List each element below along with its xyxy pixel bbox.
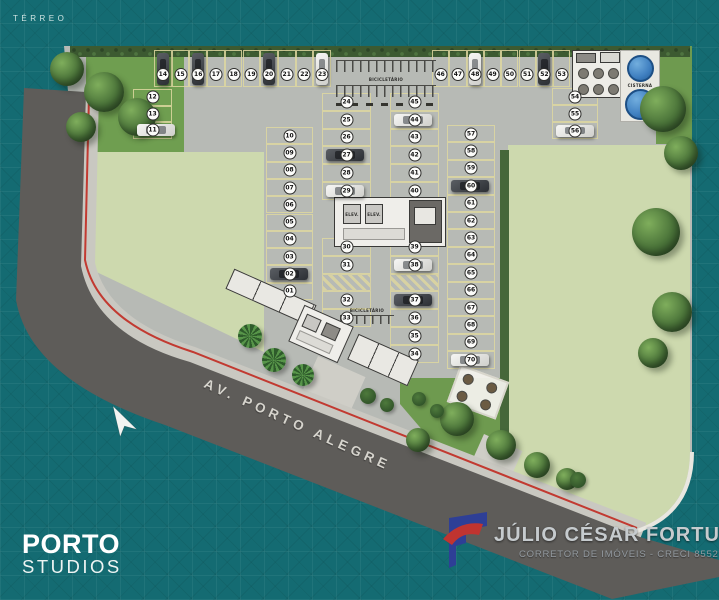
tree-icon bbox=[640, 86, 686, 132]
table-icon bbox=[578, 68, 589, 79]
spot-number: 12 bbox=[146, 91, 159, 104]
spot-number: 23 bbox=[316, 68, 329, 81]
table-icon bbox=[593, 84, 604, 95]
project-name: PORTO bbox=[22, 531, 122, 557]
spot-number: 28 bbox=[340, 167, 353, 180]
spot-number: 04 bbox=[283, 233, 296, 246]
spot-number: 45 bbox=[408, 95, 421, 108]
spot-number: 55 bbox=[569, 107, 582, 120]
spot-number: 29 bbox=[340, 184, 353, 197]
parking-spot: 19 bbox=[243, 50, 261, 87]
tree-icon bbox=[486, 430, 516, 460]
bbq-room bbox=[600, 52, 620, 63]
lobby-corridor bbox=[343, 228, 405, 240]
north-arrow-icon bbox=[104, 400, 138, 440]
spot-number: 16 bbox=[192, 68, 205, 81]
parking-spot: 60 bbox=[447, 177, 495, 194]
no-parking-hatch bbox=[322, 274, 371, 292]
table-icon bbox=[608, 84, 619, 95]
parking-spot: 63 bbox=[447, 229, 495, 246]
shrub-icon bbox=[380, 398, 394, 412]
parking-spot: 49 bbox=[484, 50, 501, 87]
spot-number: 38 bbox=[408, 258, 421, 271]
parking-spot: 07 bbox=[266, 179, 313, 196]
spot-number: 52 bbox=[538, 68, 551, 81]
spot-number: 67 bbox=[465, 301, 478, 314]
parking-spot: 15 bbox=[172, 50, 190, 87]
spot-number: 68 bbox=[465, 319, 478, 332]
parking-spot: 26 bbox=[322, 129, 371, 147]
parking-spot: 48 bbox=[467, 50, 484, 87]
spot-number: 56 bbox=[569, 124, 582, 137]
no-parking-hatch bbox=[390, 274, 439, 292]
spot-number: 39 bbox=[408, 240, 421, 253]
elevator: ELEV. bbox=[365, 204, 383, 224]
bbq-room bbox=[576, 53, 596, 63]
elevator-label: ELEV. bbox=[366, 212, 382, 217]
parking-spot: 03 bbox=[266, 248, 313, 265]
table-icon bbox=[608, 68, 619, 79]
parking-spot: 55 bbox=[552, 105, 598, 122]
spot-number: 60 bbox=[465, 179, 478, 192]
shrub-icon bbox=[412, 392, 426, 406]
parking-spot: 31 bbox=[322, 256, 371, 274]
spot-number: 19 bbox=[245, 68, 258, 81]
tree-icon bbox=[524, 452, 550, 478]
spot-number: 33 bbox=[340, 312, 353, 325]
parking-spot: 51 bbox=[519, 50, 536, 87]
wing-room bbox=[414, 207, 436, 225]
spot-number: 59 bbox=[465, 162, 478, 175]
spot-number: 08 bbox=[283, 164, 296, 177]
parking-spot: 05 bbox=[266, 214, 313, 231]
spot-number: 49 bbox=[486, 68, 499, 81]
spot-number: 06 bbox=[283, 198, 296, 211]
spot-number: 66 bbox=[465, 284, 478, 297]
parking-spot: 11 bbox=[133, 122, 172, 139]
spot-number: 51 bbox=[521, 68, 534, 81]
parking-spot: 09 bbox=[266, 144, 313, 161]
building-wing bbox=[409, 200, 442, 243]
spot-number: 69 bbox=[465, 336, 478, 349]
parking-spot: 56 bbox=[552, 122, 598, 139]
spot-number: 17 bbox=[209, 68, 222, 81]
shrub-icon bbox=[430, 404, 444, 418]
tree-icon bbox=[84, 72, 124, 112]
parking-spot: 25 bbox=[322, 111, 371, 129]
spot-number: 21 bbox=[280, 68, 293, 81]
parking-spot: 21 bbox=[278, 50, 296, 87]
spot-number: 22 bbox=[298, 68, 311, 81]
parking-spot: 10 bbox=[266, 127, 313, 144]
parking-spot: 38 bbox=[390, 256, 439, 274]
spot-number: 01 bbox=[283, 285, 296, 298]
spot-number: 57 bbox=[465, 127, 478, 140]
elevator: ELEV. bbox=[343, 204, 361, 224]
spot-number: 05 bbox=[283, 216, 296, 229]
shrub-icon bbox=[570, 472, 586, 488]
parking-spot: 58 bbox=[447, 142, 495, 159]
spot-number: 25 bbox=[340, 113, 353, 126]
parking-spot: 42 bbox=[390, 146, 439, 164]
spot-number: 53 bbox=[555, 68, 568, 81]
table-icon bbox=[485, 381, 499, 395]
tree-icon bbox=[652, 292, 692, 332]
parking-spot: 52 bbox=[536, 50, 553, 87]
parking-spot: 04 bbox=[266, 231, 313, 248]
spot-number: 41 bbox=[408, 167, 421, 180]
spot-number: 61 bbox=[465, 197, 478, 210]
realtor-name: JÚLIO CÉSAR FORTUNA bbox=[494, 524, 719, 547]
parking-spot: 14 bbox=[154, 50, 172, 87]
parking-spot: 65 bbox=[447, 264, 495, 281]
spot-number: 27 bbox=[340, 149, 353, 162]
spot-number: 15 bbox=[174, 68, 187, 81]
bike-rack-icon bbox=[336, 85, 436, 97]
parking-spot: 23 bbox=[313, 50, 331, 87]
project-logo: PORTO STUDIOS bbox=[22, 531, 122, 577]
spot-number: 58 bbox=[465, 145, 478, 158]
spot-number: 34 bbox=[408, 347, 421, 360]
parking-spot: 02 bbox=[266, 265, 313, 282]
parking-spot: 44 bbox=[390, 111, 439, 129]
parking-spot: 53 bbox=[553, 50, 570, 87]
spot-number: 14 bbox=[156, 68, 169, 81]
spot-number: 36 bbox=[408, 312, 421, 325]
parking-spot: 57 bbox=[447, 125, 495, 142]
bike-rack-label: BICICLETÁRIO bbox=[336, 77, 436, 82]
palm-icon bbox=[262, 348, 286, 372]
gatehouse-room bbox=[321, 322, 341, 341]
main-building: ELEV. ELEV. bbox=[334, 197, 446, 247]
palm-icon bbox=[292, 364, 314, 386]
parking-spot: 08 bbox=[266, 162, 313, 179]
spot-number: 11 bbox=[146, 124, 159, 137]
spot-number: 20 bbox=[263, 68, 276, 81]
spot-number: 02 bbox=[283, 268, 296, 281]
parking-spot: 68 bbox=[447, 316, 495, 333]
parking-spot: 41 bbox=[390, 164, 439, 182]
parking-spot: 62 bbox=[447, 212, 495, 229]
parking-spot: 28 bbox=[322, 164, 371, 182]
parking-spot: 16 bbox=[189, 50, 207, 87]
shrub-icon bbox=[360, 388, 376, 404]
tree-icon bbox=[406, 428, 430, 452]
spot-number: 63 bbox=[465, 232, 478, 245]
parking-spot: 47 bbox=[449, 50, 466, 87]
floor-label: TÉRREO bbox=[13, 14, 67, 23]
table-icon bbox=[479, 398, 493, 412]
spot-number: 65 bbox=[465, 266, 478, 279]
parking-spot: 27 bbox=[322, 146, 371, 164]
spot-number: 35 bbox=[408, 329, 421, 342]
spot-number: 46 bbox=[434, 68, 447, 81]
parking-spot: 50 bbox=[501, 50, 518, 87]
spot-number: 03 bbox=[283, 250, 296, 263]
parking-spot: 66 bbox=[447, 282, 495, 299]
gatehouse-room bbox=[301, 314, 321, 333]
parking-spot: 37 bbox=[390, 291, 439, 309]
parking-spot: 69 bbox=[447, 334, 495, 351]
tree-icon bbox=[638, 338, 668, 368]
spot-number: 40 bbox=[408, 184, 421, 197]
tree-icon bbox=[50, 52, 84, 86]
parking-spot: 20 bbox=[260, 50, 278, 87]
parking-spot: 17 bbox=[207, 50, 225, 87]
spot-number: 62 bbox=[465, 214, 478, 227]
parking-spot: 22 bbox=[296, 50, 314, 87]
table-icon bbox=[593, 68, 604, 79]
spot-number: 07 bbox=[283, 181, 296, 194]
spot-number: 18 bbox=[227, 68, 240, 81]
site-plan: 1213111009080706050403020114151617181920… bbox=[0, 0, 719, 600]
spot-number: 31 bbox=[340, 258, 353, 271]
spot-number: 50 bbox=[503, 68, 516, 81]
parking-spot: 61 bbox=[447, 195, 495, 212]
bike-rack-icon bbox=[336, 60, 436, 72]
table-icon bbox=[461, 372, 475, 386]
bbq-pergola bbox=[572, 50, 624, 98]
spot-number: 24 bbox=[340, 95, 353, 108]
realtor-role: CORRETOR DE IMÓVEIS - CRECI 8552 bbox=[519, 549, 719, 560]
spot-number: 54 bbox=[569, 90, 582, 103]
parking-spot: 32 bbox=[322, 291, 371, 309]
spot-number: 47 bbox=[451, 68, 464, 81]
elevator-label: ELEV. bbox=[344, 212, 360, 217]
realtor-logo-icon bbox=[441, 512, 493, 570]
spot-number: 42 bbox=[408, 149, 421, 162]
tree-icon bbox=[440, 402, 474, 436]
spot-number: 32 bbox=[340, 294, 353, 307]
spot-number: 43 bbox=[408, 131, 421, 144]
project-subtitle: STUDIOS bbox=[22, 557, 122, 577]
parking-spot: 18 bbox=[225, 50, 243, 87]
parking-spot: 43 bbox=[390, 129, 439, 147]
water-tank-icon bbox=[627, 55, 654, 82]
parking-spot: 64 bbox=[447, 247, 495, 264]
tree-icon bbox=[632, 208, 680, 256]
spot-number: 13 bbox=[146, 107, 159, 120]
spot-number: 09 bbox=[283, 146, 296, 159]
spot-number: 70 bbox=[465, 353, 478, 366]
spot-number: 44 bbox=[408, 113, 421, 126]
spot-number: 37 bbox=[408, 294, 421, 307]
spot-number: 48 bbox=[469, 68, 482, 81]
parking-spot: 70 bbox=[447, 351, 495, 368]
tree-icon bbox=[664, 136, 698, 170]
parking-spot: 67 bbox=[447, 299, 495, 316]
palm-icon bbox=[238, 324, 262, 348]
spot-number: 10 bbox=[283, 129, 296, 142]
parking-spot: 59 bbox=[447, 160, 495, 177]
spot-number: 30 bbox=[340, 240, 353, 253]
spot-number: 64 bbox=[465, 249, 478, 262]
spot-number: 26 bbox=[340, 131, 353, 144]
parking-spot: 35 bbox=[390, 327, 439, 345]
parking-spot: 06 bbox=[266, 196, 313, 213]
tree-icon bbox=[66, 112, 96, 142]
